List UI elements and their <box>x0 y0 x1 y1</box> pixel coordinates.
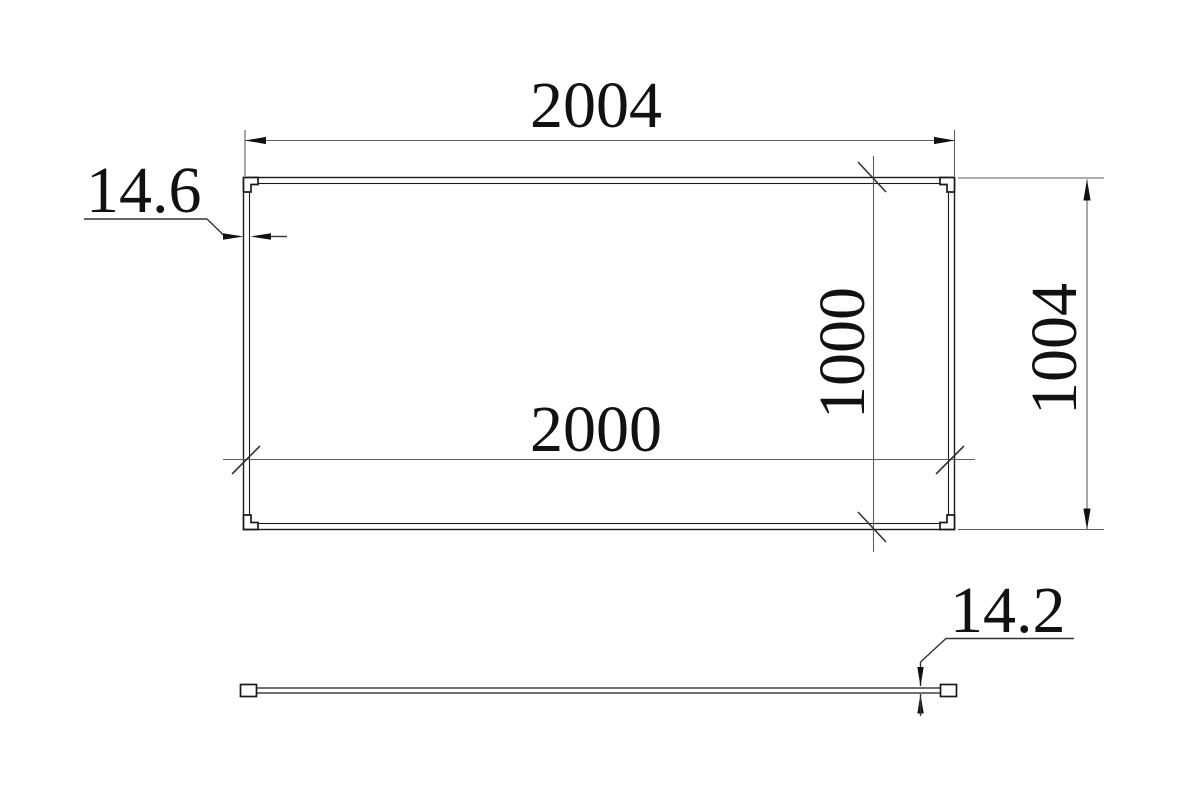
dim-overall-width-value: 2004 <box>530 69 662 142</box>
dim-inner-height-value: 1000 <box>806 287 879 419</box>
dim-inner-width-value: 2000 <box>530 393 662 466</box>
technical-drawing-canvas: 2004 1004 2000 1000 14.6 <box>0 0 1200 800</box>
dim-overall-height-value: 1004 <box>1018 283 1091 415</box>
side-view-end-cap-left <box>241 685 257 697</box>
side-view-end-cap-right <box>941 685 957 697</box>
frame-thickness-value: 14.6 <box>86 154 202 227</box>
panel-thickness-value: 14.2 <box>950 574 1066 647</box>
technical-drawing-page: 2004 1004 2000 1000 14.6 <box>0 0 1200 800</box>
